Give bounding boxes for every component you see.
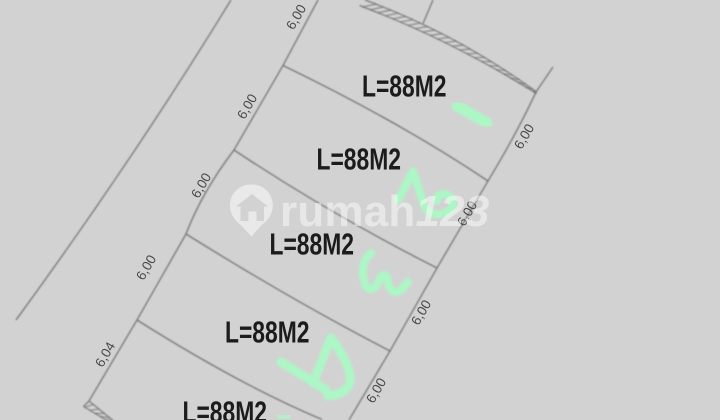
svg-text:L=88M2: L=88M2: [225, 315, 310, 349]
svg-text:L=88M2: L=88M2: [183, 396, 268, 420]
svg-text:L=88M2: L=88M2: [317, 143, 402, 177]
svg-text:L=88M2: L=88M2: [362, 69, 447, 103]
svg-text:rumah123: rumah123: [280, 187, 490, 236]
